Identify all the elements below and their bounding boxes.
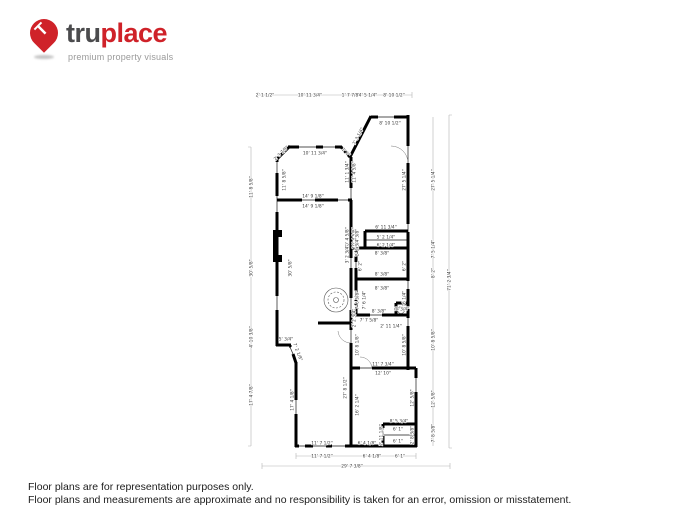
dimension-label: 2' 11 1/8" [379,424,385,445]
dimension-label: 14' 9 1/8" [302,204,323,210]
dimension-label: 6' 2" [402,261,408,271]
dimension-label: 27' 5 1/4" [431,169,437,190]
dimension-label: 8' 10 1/2" [383,93,404,99]
dimension-label: 6' 2 1/4" [377,243,396,249]
dimension-label: 17' 4 1/8" [290,389,296,410]
dimension-label: 1' 3/4" [395,307,409,313]
dimension-label: 7' 7 5/8" [360,318,379,324]
dimension-label: 8' 3/8" [375,251,389,257]
dimension-label: 2' 1 1/2" [256,93,275,99]
dimension-label: 11' 7 1/2" [311,454,332,460]
dimension-label: 5' 2 1/4" [377,235,396,241]
dimension-label: 6' 1" [395,454,405,460]
dimension-label: 11' 8 5/8" [249,176,255,197]
dimension-label: 27' 5 1/4" [402,169,408,190]
dimension-label: 6' 4 1/8" [363,454,382,460]
disclaimer-line-2: Floor plans and measurements are approxi… [28,494,571,507]
dimension-label: 4' 10 3/8" [249,326,255,347]
dimension-label: 8' 3/8" [372,309,386,315]
dimension-label: 11' 8 5/8" [282,169,288,190]
dimension-label: 71' 2 3/4" [447,269,453,290]
dimension-label: 16' 2 1/4" [355,394,361,415]
dimension-label: 8' 2" [431,268,437,278]
dimension-label: 6' 4 1/8" [358,441,377,447]
dimension-label: 6' 2" [358,261,364,271]
dimension-label: 11' 1 3/4" [345,161,351,182]
dimension-label: 6' 11 3/4" [375,225,396,231]
dimension-label: 12' 10" [375,371,391,377]
dimension-label: 12' 5/8" [410,389,416,406]
dimension-label: 11' 4 5/8" [352,161,358,182]
dimension-label: 6' 1" [393,427,403,433]
dimension-label: 7' 5 1/4" [431,240,437,259]
dimension-label: 10' 8 1/8" [355,334,361,355]
dimension-label: 17' 4 7/8" [249,384,255,405]
dimension-label: 14' 9 1/8" [302,194,323,200]
ceiling-medallion [324,288,348,312]
dimension-label: 7' 6 5/8" [355,291,361,310]
dimension-label: 2' 3 7/8" [273,145,290,162]
dimension-label: 29' 7 3/8" [341,464,362,470]
dimension-label: 5' 3/4" [279,337,293,343]
dimension-label: 8' 5 3/4" [390,419,409,425]
dimension-label: 10' 11 3/4" [298,93,322,99]
dimension-label: 7' 6 1/4" [362,291,368,310]
dimension-label: 10' 8 5/8" [431,329,437,350]
dimension-label: 12' 5/8" [431,390,437,407]
dimension-label: 2' 8 3/8" [410,426,416,445]
dimension-label: 6' 1" [393,439,403,445]
dimension-label: 10' 11 3/4" [303,151,327,157]
page: T truplace premium property visuals [0,0,700,525]
dimension-label: 3' 2 3/4" [345,245,351,264]
dimension-label: 2' 11 1/4" [380,324,401,330]
dimension-label: 8' 10 1/2" [379,121,400,127]
dimension-label: 30' 5/8" [288,259,294,276]
disclaimer-line-1: Floor plans are for representation purpo… [28,481,571,494]
dimension-label: 27' 8 1/2" [343,377,349,398]
dimension-label: 7' 8 5/8" [431,424,437,443]
dimension-label: 2' 2 3/4" [355,238,361,257]
dimension-label: 8' 3/8" [375,286,389,292]
dimension-label: 11' 7 3/4" [372,362,393,368]
disclaimer: Floor plans are for representation purpo… [28,481,571,507]
dimension-label: 30' 5/8" [249,259,255,276]
dimension-label: 1' 7 7/8" [342,93,361,99]
dimension-label: 2' 2 3/4" [352,309,358,328]
dimension-label: 11' 7 1/2" [311,441,332,447]
floor-plan: 2' 1 1/2"10' 11 3/4"1' 7 7/8"4' 5 1/4"8'… [0,0,700,525]
dimension-label: 4' 5 1/4" [359,93,378,99]
dimension-label: 10' 8 5/8" [402,334,408,355]
dimension-label: 8' 3/8" [375,272,389,278]
